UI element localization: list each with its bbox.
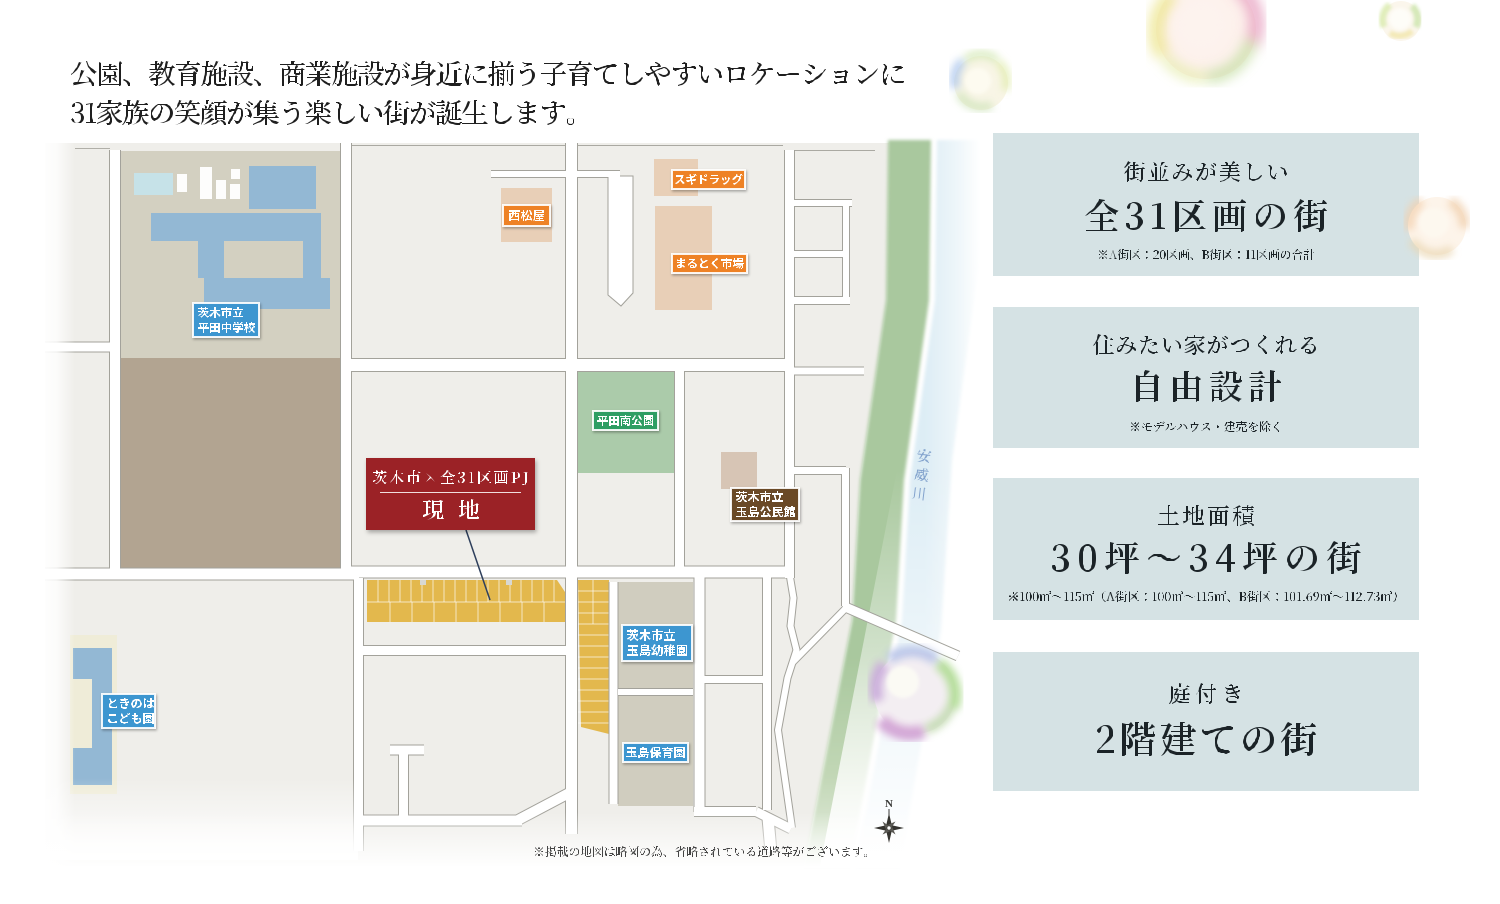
svg-text:N: N: [885, 798, 893, 810]
